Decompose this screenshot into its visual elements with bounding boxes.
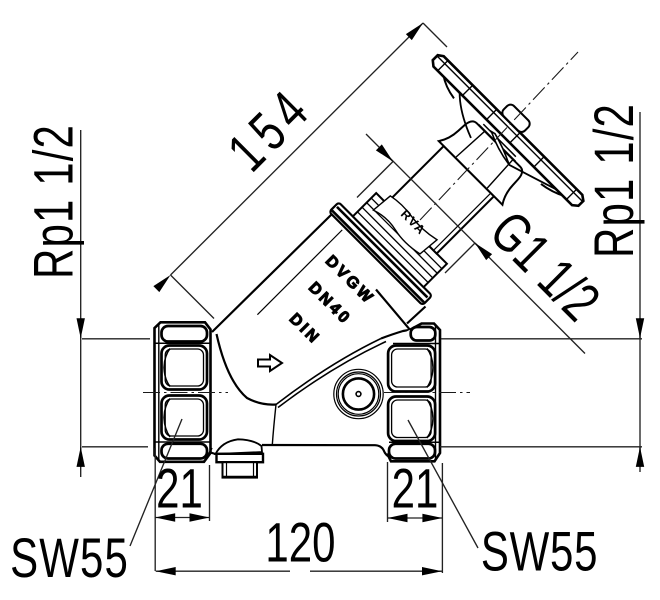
svg-text:21: 21: [156, 458, 203, 520]
svg-text:120: 120: [265, 512, 335, 574]
svg-text:Rp1 1/2: Rp1 1/2: [583, 103, 645, 258]
svg-text:SW55: SW55: [481, 521, 598, 583]
svg-text:Rp1 1/2: Rp1 1/2: [23, 124, 85, 279]
svg-text:SW55: SW55: [10, 527, 129, 589]
svg-text:21: 21: [392, 458, 439, 520]
